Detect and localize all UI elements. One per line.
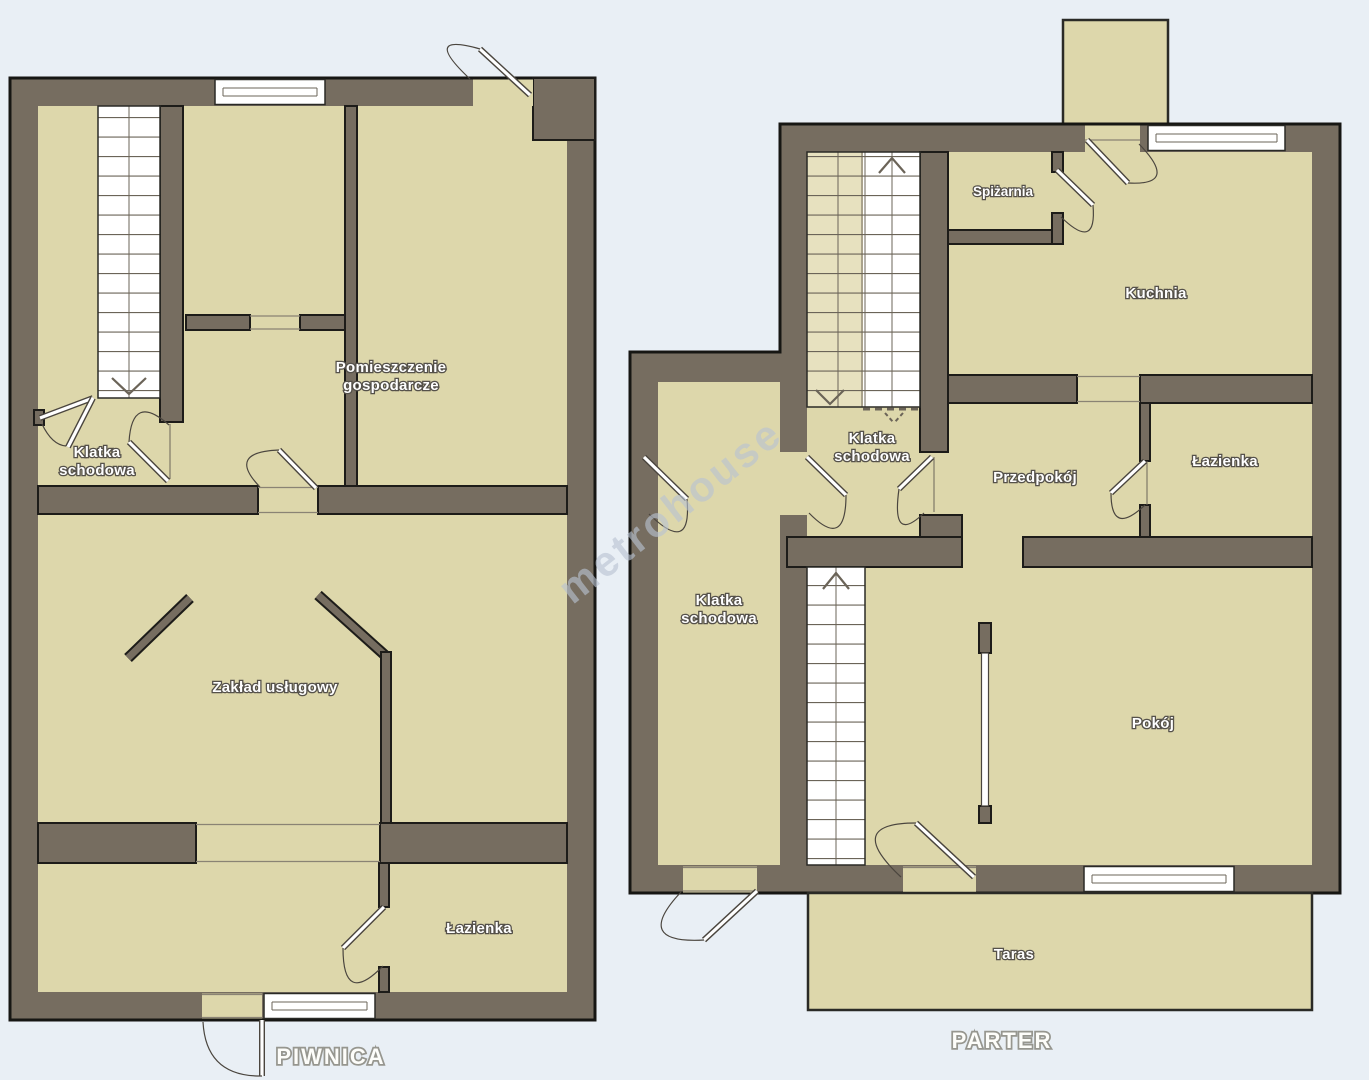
bathroom-wall-upper xyxy=(379,863,389,907)
hall-south-wall-left xyxy=(787,537,962,567)
parter-window-bottom xyxy=(1084,867,1234,892)
pantry-south-wall xyxy=(948,230,1063,244)
mid-wall-left xyxy=(38,486,258,514)
parter-window-top xyxy=(1148,126,1285,151)
room-label-pomieszczenie: gospodarcze xyxy=(343,377,439,394)
terrace xyxy=(808,893,1312,1010)
stairwell-wall xyxy=(160,106,183,422)
room-label-lazienka-parter: Łazienka xyxy=(1192,453,1258,470)
partition-wall-vertical xyxy=(381,652,391,823)
piwnica-exterior-door-bottom xyxy=(202,994,262,1077)
stairwell-east-wall xyxy=(920,152,948,452)
room-label-lazienka: Łazienka xyxy=(446,920,512,937)
small-room-wall xyxy=(186,315,250,330)
room-label-taras: Taras xyxy=(994,946,1034,963)
floor-plan-parter: Spiżarnia Kuchnia Klatka schodowa Przedp… xyxy=(630,20,1340,1053)
room-label-przedpokoj: Przedpokój xyxy=(993,469,1077,486)
small-room-wall xyxy=(300,315,345,330)
floorplan-canvas: Klatka schodowa Pomieszczenie gospodarcz… xyxy=(0,0,1369,1080)
room-label-klatka-schodowa: schodowa xyxy=(59,462,135,479)
hall-south-wall-right xyxy=(1023,537,1312,567)
room-label-spizarnia: Spiżarnia xyxy=(973,184,1034,199)
bathroom-west-jamb xyxy=(1140,403,1150,461)
room-label-klatka-dolna: schodowa xyxy=(681,610,757,627)
parter-upper-staircase xyxy=(807,152,920,423)
lower-wall-left xyxy=(38,823,196,863)
room-label-zaklad: Zakład usługowy xyxy=(212,679,338,696)
room-label-klatka-gorna: Klatka xyxy=(849,430,896,447)
storage-room-wall-vertical xyxy=(345,106,357,488)
piwnica-window-bottom xyxy=(264,994,375,1019)
corridor-landing-opening xyxy=(780,452,807,515)
piwnica-staircase xyxy=(98,106,160,398)
floor-plan-piwnica: Klatka schodowa Pomieszczenie gospodarcz… xyxy=(10,44,595,1076)
mid-wall-right xyxy=(318,486,567,514)
room-label-klatka-dolna: Klatka xyxy=(696,592,743,609)
room-label-klatka-schodowa: Klatka xyxy=(74,444,121,461)
room-label-pokoj: Pokój xyxy=(1132,715,1174,732)
plan-title-piwnica: PIWNICA xyxy=(276,1044,385,1069)
piwnica-window-top xyxy=(215,80,325,105)
bathroom-west-jamb xyxy=(1140,505,1150,537)
plan-title-parter: PARTER xyxy=(952,1028,1053,1053)
room-label-pomieszczenie: Pomieszczenie xyxy=(336,359,447,376)
bathroom-wall-lower xyxy=(379,967,389,992)
room-label-kuchnia: Kuchnia xyxy=(1125,285,1187,302)
kitchen-south-wall-right xyxy=(1140,375,1312,403)
entry-jamb-block xyxy=(533,78,595,140)
room-label-klatka-gorna: schodowa xyxy=(834,448,910,465)
parter-lower-staircase xyxy=(807,567,865,865)
pantry-door-jamb xyxy=(1052,152,1063,172)
floorplan-page: Klatka schodowa Pomieszczenie gospodarcz… xyxy=(0,0,1369,1080)
lower-wall-right xyxy=(380,823,567,863)
kitchen-south-wall-left xyxy=(948,375,1077,403)
